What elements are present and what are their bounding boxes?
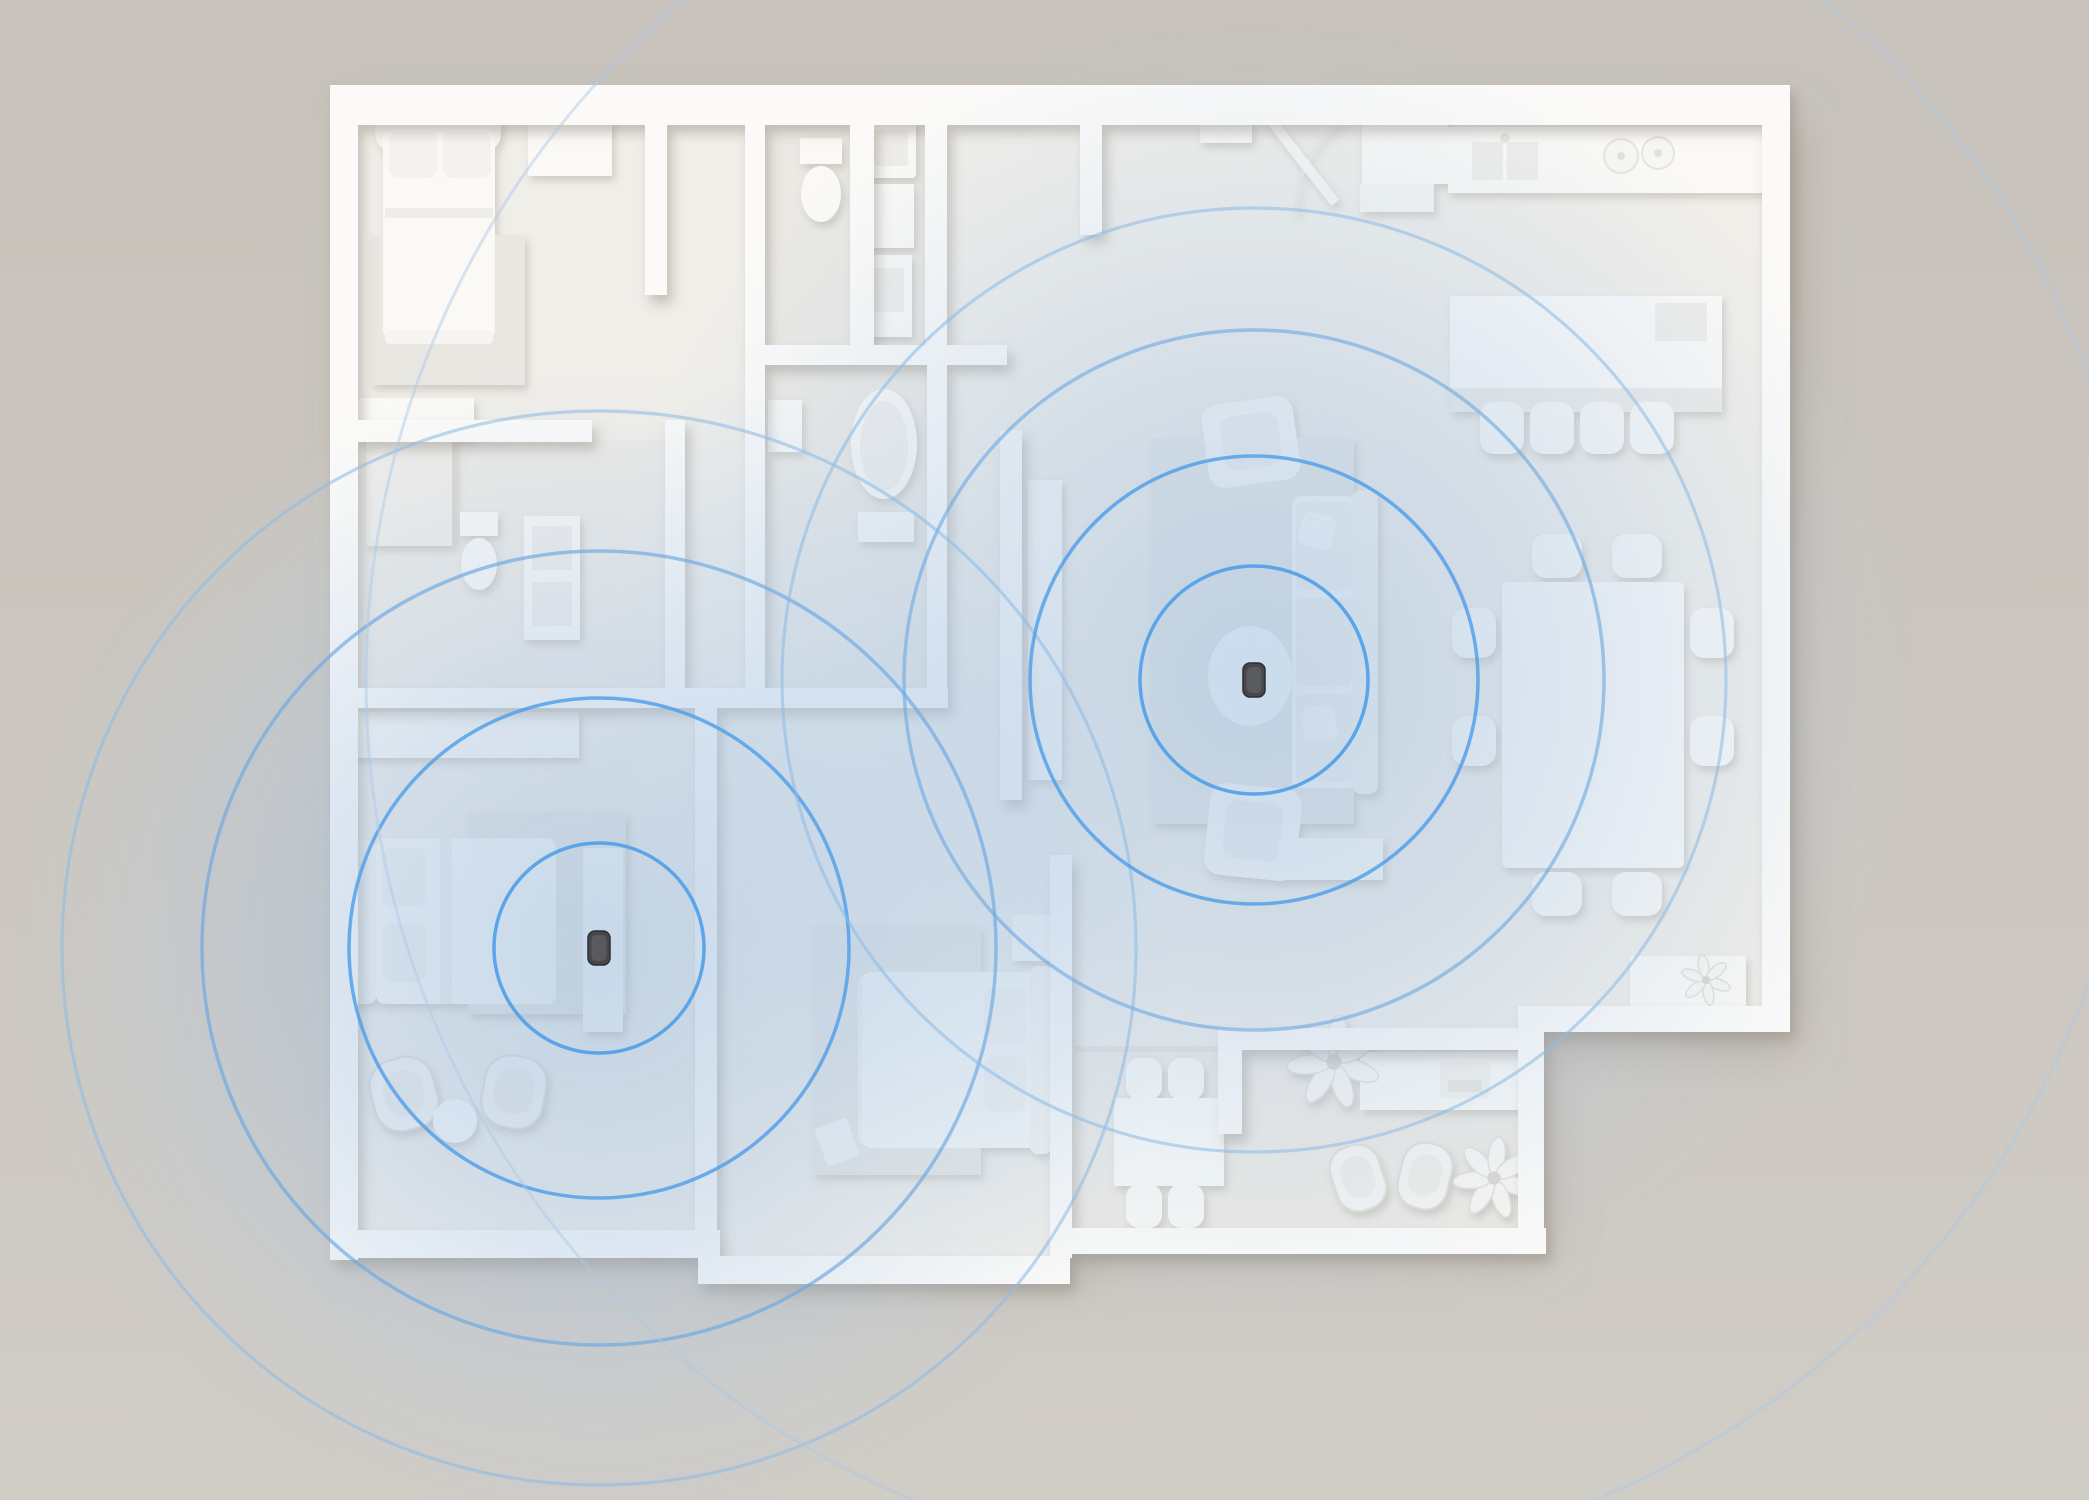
layer-coverage [19, 20, 1914, 1500]
bedroom1-footboard [385, 330, 493, 344]
wall-bedroom1-right [645, 85, 667, 295]
bedroom1-duvet-fold [385, 208, 493, 218]
floorplan-render [0, 0, 2089, 1500]
mesh-router-bedroom-top [592, 935, 607, 961]
mesh-router-living-room [1243, 663, 1265, 697]
bedroom1-pillow [443, 132, 491, 178]
mesh-router-living-room-top [1247, 667, 1262, 693]
toilet-tank [800, 138, 842, 164]
bedroom1-pillow [389, 132, 437, 178]
floorplan-svg [0, 0, 2089, 1500]
mesh-router-bedroom [588, 931, 610, 965]
cooking-pot-knob [1654, 149, 1662, 157]
